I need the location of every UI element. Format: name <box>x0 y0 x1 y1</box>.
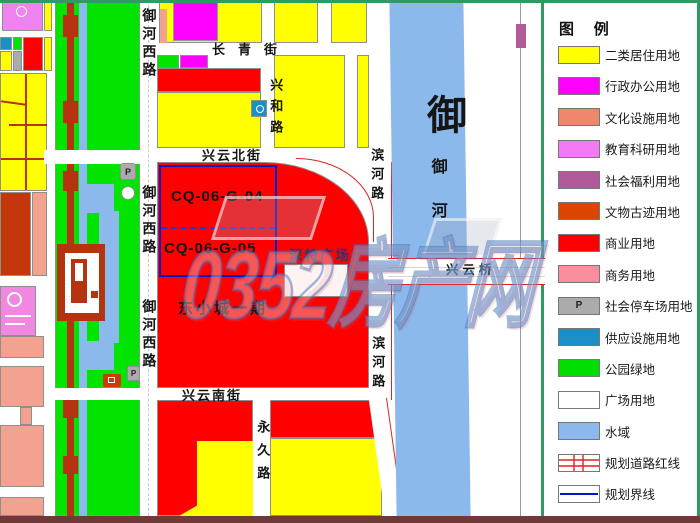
legend-item: 供应设施用地 <box>558 328 693 347</box>
palace-complex <box>57 244 105 321</box>
land-parcel-residential <box>357 55 369 148</box>
site-sketch-line <box>5 323 25 325</box>
land-parcel-cultural <box>160 9 167 43</box>
legend-label: 文化设施用地 <box>605 108 680 127</box>
land-parcel-residential <box>270 438 382 516</box>
wall-bastion <box>63 15 78 37</box>
legend-item: 社会福利用地 <box>558 171 693 190</box>
street-label-yuhe-west-1: 御河西路 <box>140 8 155 80</box>
street-label-xingyun-south: 兴云南街 <box>182 389 242 403</box>
land-parcel-welfare <box>516 24 526 48</box>
legend-label: 商务用地 <box>605 265 655 284</box>
legend-item: 规划界线 <box>558 484 693 503</box>
legend-swatch-swatch <box>558 202 600 220</box>
utility-icon <box>256 105 264 113</box>
wall-bastion <box>63 101 78 123</box>
land-parcel-cultural <box>0 425 44 487</box>
legend-swatch-swatch <box>558 328 600 346</box>
legend-item: P社会停车场用地 <box>558 296 693 315</box>
palace-courtyard <box>75 263 83 281</box>
plaza-parcel <box>284 264 348 297</box>
land-parcel-green <box>157 55 179 68</box>
land-parcel-residential <box>274 0 318 43</box>
parking-lot-marker: P <box>127 366 140 381</box>
legend-item: 公园绿地 <box>558 359 693 378</box>
land-parcel-residential <box>179 505 198 516</box>
land-parcel-residential <box>197 441 253 516</box>
street-label-xingyun-north: 兴云北街 <box>202 149 262 163</box>
site-circle-icon <box>7 292 22 307</box>
zone-code-cq04: CQ-06-G-04 <box>171 189 264 206</box>
planning-boundary <box>159 165 277 277</box>
river-name-small: 御河 <box>428 158 446 246</box>
planning-road-redline <box>296 158 374 242</box>
land-parcel-cultural <box>0 366 44 407</box>
legend-item: 规划道路红线 <box>558 453 693 472</box>
land-parcel-heritage <box>0 192 31 276</box>
land-parcel <box>0 51 12 71</box>
frame-top-line <box>0 0 700 3</box>
site-circle-icon <box>16 6 27 17</box>
legend-label: 二类居住用地 <box>605 45 680 64</box>
legend-swatch-swatch <box>558 77 600 95</box>
legend-swatch-parking: P <box>558 297 600 315</box>
legend-swatch-boundary-line <box>558 485 600 503</box>
temple-marker <box>103 374 121 387</box>
legend-item: 二类居住用地 <box>558 45 693 64</box>
zone-label-plaza: 深特广场 <box>289 249 351 264</box>
legend-swatch-swatch <box>558 422 600 440</box>
legend-label: 教育科研用地 <box>605 139 680 158</box>
legend-label: 社会福利用地 <box>605 171 680 190</box>
legend-item: 广场用地 <box>558 390 693 409</box>
moat-stream <box>87 341 114 370</box>
land-parcel-residential <box>0 73 47 191</box>
legend-panel: 图 例 二类居住用地行政办公用地文化设施用地教育科研用地社会福利用地文物古迹用地… <box>546 0 697 516</box>
land-parcel-admin <box>180 55 208 68</box>
temple-icon <box>108 377 115 383</box>
legend-label: 供应设施用地 <box>605 328 680 347</box>
frame-bottom-bar <box>0 516 700 523</box>
existing-road-line <box>1 158 48 160</box>
land-parcel-cultural <box>0 336 44 358</box>
legend-swatch-swatch <box>558 265 600 283</box>
legend-label: 规划道路红线 <box>605 453 680 472</box>
land-parcel <box>44 2 52 31</box>
parking-symbol: P <box>128 369 139 378</box>
land-parcel-commercial <box>23 37 43 71</box>
land-parcel-commercial <box>157 400 253 516</box>
parking-symbol: P <box>559 300 599 311</box>
planning-boundary-divider <box>161 227 275 229</box>
land-parcel-cultural <box>20 407 32 425</box>
land-parcel-cultural <box>0 497 44 516</box>
street-label-xinghe: 兴和路 <box>268 78 282 141</box>
legend-item: 文物古迹用地 <box>558 202 693 221</box>
park-green-belt <box>55 0 140 516</box>
parking-lot-marker: P <box>120 163 136 180</box>
site-sketch-line <box>5 315 31 317</box>
zone-code-cq05: CQ-06-G-05 <box>164 241 257 258</box>
legend-label: 商业用地 <box>605 233 655 252</box>
land-parcel-commercial <box>270 400 382 438</box>
wall-bastion <box>63 171 78 191</box>
land-parcel-supply <box>251 100 267 117</box>
legend-list: 二类居住用地行政办公用地文化设施用地教育科研用地社会福利用地文物古迹用地商业用地… <box>558 45 693 516</box>
land-parcel-residential <box>331 0 367 43</box>
land-parcel-parking <box>13 51 22 71</box>
legend-swatch-swatch <box>558 171 600 189</box>
road-xingyun-south-extension <box>44 388 158 400</box>
land-parcel-cultural <box>32 192 47 276</box>
zone-label-dongxiaocheng: 东小城一期 <box>178 301 268 318</box>
legend-label: 规划界线 <box>605 484 655 503</box>
existing-road-line <box>25 74 27 124</box>
legend-swatch-swatch <box>558 234 600 252</box>
legend-label: 公园绿地 <box>605 359 655 378</box>
street-label-binhe-south: 滨河路 <box>370 336 384 393</box>
legend-title: 图 例 <box>559 18 617 39</box>
street-label-changqing: 长青街 <box>212 43 290 57</box>
land-parcel-green <box>13 37 22 50</box>
wall-bastion <box>63 456 78 474</box>
land-parcel-residential <box>274 55 345 148</box>
moat-stream <box>87 184 114 213</box>
legend-swatch-swatch <box>558 46 600 64</box>
street-label-binhe-north: 滨河路 <box>369 148 383 205</box>
bridge-label-xingyun: 兴云桥 <box>446 264 496 278</box>
boundary-line-icon <box>560 493 598 496</box>
land-parcel-admin <box>173 1 218 41</box>
legend-swatch-road-redline <box>558 454 600 472</box>
street-label-yongjiu: 永久路 <box>255 420 269 489</box>
parking-symbol: P <box>121 167 135 177</box>
legend-item: 商业用地 <box>558 233 693 252</box>
land-parcel-education <box>0 286 36 336</box>
legend-item: 商务用地 <box>558 265 693 284</box>
existing-road-line <box>1 100 26 105</box>
land-parcel-education <box>2 2 43 31</box>
legend-swatch-swatch <box>558 140 600 158</box>
road-redline-icon <box>559 455 599 471</box>
legend-label: 广场用地 <box>605 390 655 409</box>
legend-label: 社会停车场用地 <box>605 296 693 315</box>
river-name-large: 御 <box>427 94 467 138</box>
existing-road-line <box>25 124 27 190</box>
palace-building <box>91 291 98 298</box>
road-xingyun-north-extension <box>44 150 158 164</box>
land-parcel-supply <box>0 37 12 50</box>
land-parcel <box>44 37 52 71</box>
legend-swatch-swatch <box>558 108 600 126</box>
legend-item: 行政办公用地 <box>558 76 693 95</box>
land-parcel-commercial <box>157 68 261 92</box>
legend-swatch-swatch <box>558 359 600 377</box>
street-label-yuhe-west-2: 御河西路 <box>140 185 155 257</box>
site-circle-icon <box>121 186 135 200</box>
legend-item: 文化设施用地 <box>558 108 693 127</box>
legend-label: 水域 <box>605 422 630 441</box>
legend-item: 教育科研用地 <box>558 139 693 158</box>
land-parcel-residential <box>159 0 262 43</box>
planning-map: P P 长青街 <box>0 0 700 523</box>
legend-item: 水域 <box>558 422 693 441</box>
existing-road-line <box>9 124 47 126</box>
legend-label: 行政办公用地 <box>605 76 680 95</box>
legend-swatch-swatch <box>558 391 600 409</box>
street-label-yuhe-west-3: 御河西路 <box>140 299 155 371</box>
legend-label: 文物古迹用地 <box>605 202 680 221</box>
land-parcel-residential <box>157 92 261 148</box>
